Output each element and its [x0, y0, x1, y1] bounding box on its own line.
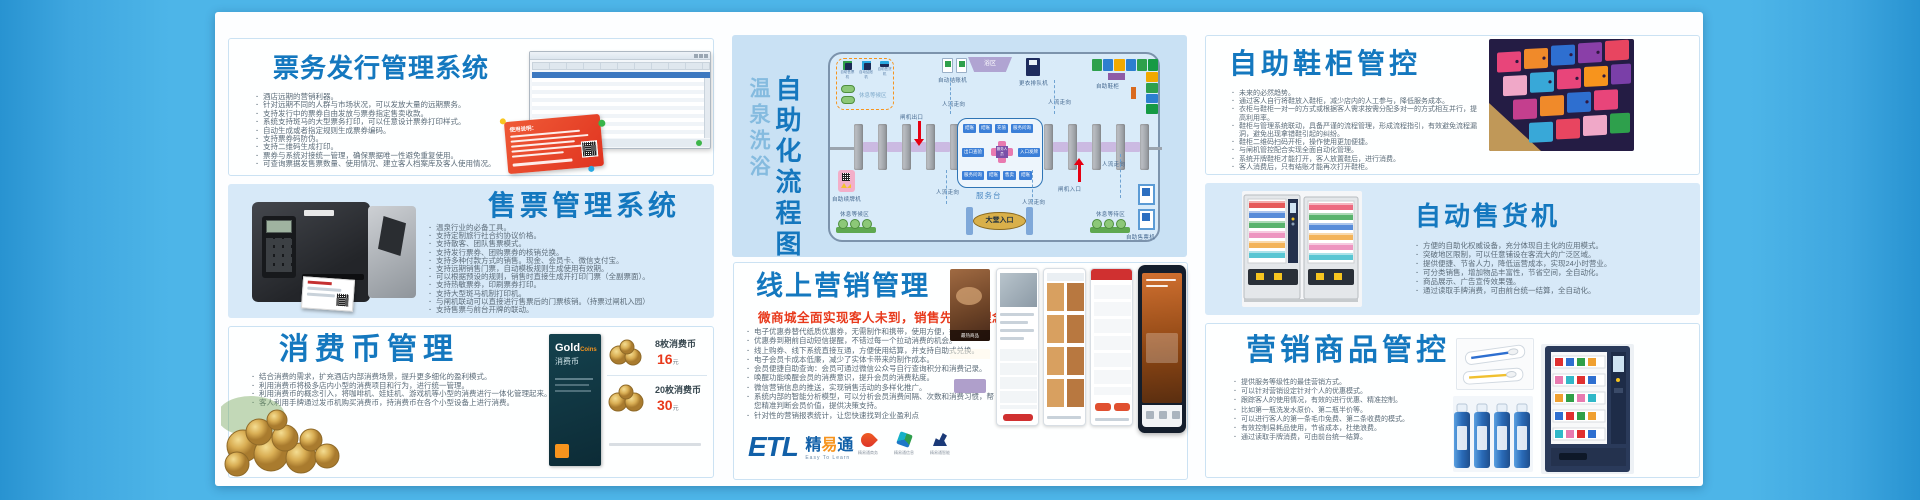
sub-brand: 精易通商务 [852, 433, 884, 456]
exit-arrow-head [914, 139, 924, 146]
bullet-list: 方便的自助化权威设备，充分体现自主化的应用模式。突破地区限制，可以任意铺设在客流… [1415, 241, 1690, 295]
bullet-line: 比如第一瓶洗发水原价、第二瓶半价等。 [1233, 406, 1451, 415]
locker-cell [1146, 72, 1158, 82]
gate-channel [887, 142, 902, 152]
price-value: 16元 [657, 351, 679, 369]
seat-icon [850, 219, 860, 229]
locker-cell [1137, 59, 1147, 71]
flow-dir-label: 人流走向 [942, 100, 965, 108]
sub-brand-label: 精易通智能 [924, 450, 956, 456]
hot-product-label: 最热商品 [950, 330, 990, 341]
bullet-line: 鞋柜与管理系统联动，具备严谨的流程管理，形成流程指引，有效避免流程漏洞，避免出现… [1231, 123, 1481, 139]
price-unit: 元 [673, 360, 679, 366]
desk-button: 充值 [995, 124, 1008, 133]
kiosk-screen [945, 61, 951, 67]
renew-qr-icon [842, 173, 850, 181]
screen-text-bar [1146, 285, 1168, 287]
coin-price-list: 8枚消费币 16元 20枚消费币 30元 [607, 331, 711, 471]
queue-label: 更衣排队机 [1019, 79, 1048, 87]
ticket-kiosk-label: 自助售票机 [1126, 233, 1155, 241]
etl-cn-block: 精易通 Easy To Learn [805, 431, 853, 461]
instruction-card: 使用说明： [504, 114, 604, 174]
screen-text-bar [1146, 279, 1176, 281]
renew-machine-icon [838, 170, 855, 192]
rest-right-label: 休息等待区 [1096, 210, 1125, 218]
app-hero-image [1000, 273, 1037, 307]
gold-coins-photo [221, 390, 351, 478]
legend-box: 自助售票机 自动结账机 自助售货机 休息等候区 [836, 58, 894, 110]
app-text-bar [1047, 416, 1081, 419]
window-titlebar [530, 52, 710, 60]
bullet-line: 提供便捷、节省人力，降低运营成本，实现24小时营业。 [1415, 259, 1690, 268]
sub-brand-label: 精易通信息 [888, 450, 920, 456]
service-desk-label: 服务台 [976, 190, 1002, 201]
app-button[interactable] [1003, 414, 1033, 421]
desk-btn-entry-issue: 入口发牌 [1018, 148, 1040, 157]
desk-button: 结账 [987, 171, 1000, 180]
card-line [555, 384, 589, 386]
bullet-line: 未来的必然趋势。 [1231, 90, 1481, 98]
card-line [555, 390, 591, 392]
desk-button: 服务问询 [1011, 124, 1033, 133]
price-number: 16 [657, 351, 673, 367]
bullet-line: 可以进行客人的第一条毛巾免费、第二条收费的模式。 [1233, 415, 1451, 424]
window-buttons-icon [694, 54, 708, 58]
entry-arrow [1078, 164, 1081, 182]
amenity-kits-photo [1456, 338, 1534, 390]
bullet-list: 未来的必然趋势。通过客人自行将鞋放入鞋柜，减少店内的人工参与，降低服务成本。衣柜… [1231, 90, 1481, 172]
rest-left-label: 休息等候区 [840, 210, 869, 218]
label-qr-icon [336, 294, 349, 307]
brand-char: 精 [805, 437, 821, 454]
gate-channel [863, 142, 878, 152]
app-list [1094, 285, 1131, 395]
locker-cell [1148, 59, 1158, 71]
lobby-label: 大堂入口 [974, 213, 1025, 229]
brand-char: 通 [837, 437, 853, 454]
gate-channel [935, 142, 950, 152]
price-number: 30 [657, 397, 673, 413]
flow-dir-label: 人流走向 [936, 188, 959, 196]
brand-sub-text: Coins [580, 347, 597, 353]
card-text-line [512, 151, 564, 158]
room-photo [950, 349, 990, 419]
wall [830, 147, 855, 150]
bath-label: 浴区 [968, 57, 1012, 72]
robot-logo-icon [933, 433, 947, 446]
panel-ticket-selling: 售票管理系统 温泉行业的必备工具。支持定制旅行社合约协议价格。支持散客、团队售票… [228, 184, 714, 318]
app-list [1000, 349, 1037, 409]
flow-room: 自助售票机 自动结账机 自助售货机 休息等候区 自动结账机 浴区 更衣排队机 自… [828, 52, 1160, 242]
app-text-bar [1000, 313, 1034, 316]
gate-pillar [902, 124, 911, 170]
desk-button: 服务问询 [962, 171, 984, 180]
panel-ticket-issuing: 票务发行管理系统 酒店远期的营销利器。针对远期不同的人群与市场状况，可以发放大量… [228, 38, 714, 176]
desk-row-bottom: 服务问询结账售卖结账 [962, 171, 1032, 180]
flow-path [950, 78, 951, 114]
seat-icon [1116, 219, 1126, 229]
flow-path [1120, 154, 1121, 198]
bullet-line: 通过读取手牌消费，可由前台统一结算。 [1233, 433, 1451, 442]
locker-photo [1489, 39, 1634, 151]
legend-rest-label: 休息等候区 [859, 91, 887, 99]
desk-center-cross: 服务人员 [991, 141, 1013, 163]
card-logo-icon [555, 444, 569, 458]
exit-arrow [918, 121, 921, 140]
panel-title: 线上营销管理 [756, 273, 930, 300]
photo-highlight [956, 287, 982, 305]
poster-stage: 票务发行管理系统 酒店远期的营销利器。针对远期不同的人群与市场状况，可以发放大量… [0, 0, 1920, 500]
price-unit: 元 [673, 406, 679, 412]
desk-button: 结账 [963, 124, 976, 133]
brand-tagline: Easy To Learn [805, 455, 853, 461]
sub-brand: 精易通智能 [924, 433, 956, 456]
bullet-line: 方便的自助化权威设备，充分体现自主化的应用模式。 [1415, 241, 1690, 250]
legend-seat-icon [841, 85, 855, 93]
bullet-line: 跟踪客人的使用情况，有效的进行优惠、精准控制。 [1233, 396, 1451, 405]
bath-zone: 浴区 [968, 57, 1012, 72]
gate-entry-label: 闸机入口 [1058, 185, 1081, 193]
status-dot-icon [696, 140, 702, 146]
confetti-dot [588, 166, 595, 173]
card-title: 使用说明： [509, 123, 537, 133]
printer-buttons [266, 238, 292, 272]
seat-icon [1104, 219, 1114, 229]
legend-item: 自助售票机 [839, 61, 856, 80]
locker-cell [1103, 59, 1113, 71]
kiosk-screen [1142, 213, 1150, 221]
gate-pillar [854, 124, 863, 170]
gate-channel [1101, 142, 1116, 152]
panel-flow-diagram: 温泉洗浴 自助化流程图 自助售票机 自动结账机 自助售货机 休息等候区 自动结账… [732, 35, 1187, 257]
flow-path [1054, 80, 1055, 114]
divider [607, 375, 707, 376]
locker-bench [1131, 87, 1136, 99]
etl-logo: ETL [748, 431, 798, 462]
gate-channel [1125, 142, 1140, 152]
wall [1148, 147, 1162, 150]
panel-online-marketing: 线上营销管理 微商城全面实现客人未到，销售先行的理念 电子优惠券替代纸质优惠券，… [733, 262, 1188, 480]
phone-screen [1142, 273, 1182, 403]
app-text-bar [1000, 321, 1028, 324]
desk-staff-label: 服务人员 [996, 146, 1008, 158]
coin-stack-photo [607, 383, 649, 413]
panel-vending: 自动售货机 方便的自助化权威设备，充分体现自主化的应用模式。突破地区限制，可以任… [1205, 183, 1700, 315]
cube-logo-icon [896, 431, 913, 448]
bottom-icon [1146, 411, 1154, 419]
desk-button: 售卖 [1003, 171, 1016, 180]
label-text-bar [308, 281, 332, 286]
printer-lcd [266, 220, 292, 233]
app-screenshot-phone [1043, 268, 1086, 426]
toiletry-bottles-photo [1453, 396, 1533, 472]
card-text-line [513, 158, 573, 166]
legend-item: 自助售货机 [876, 61, 893, 80]
flow-dir-label: 人流走向 [1102, 160, 1125, 168]
scrollbar[interactable] [704, 78, 710, 138]
gate-pillar [878, 124, 887, 170]
gate-pillar [1092, 124, 1101, 170]
bullet-line: 提供服务等级性的最佳营销方式。 [1233, 378, 1451, 387]
card-line [555, 378, 593, 380]
fine-print-line [609, 443, 701, 446]
screen-card [1146, 333, 1178, 363]
desk-btn-exit-check: 出口查验 [962, 148, 984, 157]
shoe-locker-label: 自助鞋柜 [1096, 82, 1119, 90]
locker-cell [1114, 59, 1124, 71]
ticket-kiosk-icon [1138, 209, 1155, 230]
machine-icon [862, 61, 871, 70]
kiosk-screen [959, 61, 965, 67]
locker-desk [1108, 73, 1125, 80]
label-text-bar [307, 293, 335, 298]
window-toolbar [532, 62, 710, 70]
legend-machines: 自助售票机 自动结账机 自助售货机 [839, 61, 893, 80]
bullet-line: 支持售票与前台开牌的联动。 [428, 306, 708, 314]
machine-screen [1029, 60, 1037, 65]
shoe-locker-col [1146, 72, 1158, 114]
panel-title: 营销商品管控 [1246, 336, 1450, 366]
bullet-line: 突破地区限制，可以任意铺设在客流大的广泛区域。 [1415, 250, 1690, 259]
price-value: 30元 [657, 397, 679, 415]
renew-spark-icon [841, 183, 851, 188]
photo-accent [954, 379, 986, 393]
price-label: 20枚消费币 [655, 383, 701, 396]
gate-pillar [926, 124, 935, 170]
panel-title: 消费币管理 [279, 335, 459, 365]
panel-shoe-locker: 自助鞋柜管控 未来的必然趋势。通过客人自行将鞋放入鞋柜，减少店内的人工参与，降低… [1205, 35, 1700, 175]
panel-title: 自动售货机 [1415, 203, 1560, 229]
checkout-kiosk-icon [956, 58, 967, 73]
app-header-red [1091, 269, 1132, 280]
bullet-line: 可以针对营销设定针对个人的优惠模式。 [1233, 387, 1451, 396]
sub-brand: 精易通信息 [888, 433, 920, 456]
bottom-icon [1172, 411, 1180, 419]
legend-label: 自助售货机 [876, 67, 893, 77]
desk-row-top: 结账结账充值服务问询 [963, 124, 1033, 133]
card-name: 消费币 [555, 356, 579, 367]
renew-label: 自助续牌机 [832, 195, 861, 203]
locker-cell [1146, 104, 1158, 114]
lobby-pillar [1026, 207, 1033, 235]
shoe-locker-row [1092, 59, 1158, 71]
app-image-grid [1047, 283, 1084, 407]
kiosk-screen [1142, 188, 1150, 196]
bottom-icon [1159, 411, 1167, 419]
legend-label: 自动结账机 [858, 70, 875, 80]
lobby-entrance: 大堂入口 [973, 212, 1026, 230]
label-text-bar [307, 287, 341, 292]
bullet-line: 客人消费后，只有结账才能再次打开鞋柜。 [1231, 164, 1481, 172]
gate-channel [1053, 142, 1068, 152]
etl-brand: ETL 精易通 Easy To Learn [748, 431, 853, 473]
phoenix-logo-icon [858, 430, 878, 450]
seat-icon [862, 219, 872, 229]
locker-cell [1092, 59, 1102, 71]
brand-text: Gold [555, 342, 580, 354]
printed-label [301, 276, 355, 312]
legend-seat-icon [841, 96, 855, 104]
vending-machines-photo [1242, 191, 1362, 307]
phone-bottom-bar [1142, 405, 1182, 427]
card-brand: GoldCoins [555, 342, 597, 354]
flow-dir-label: 人流走向 [1022, 198, 1045, 206]
queue-machine-icon [1026, 58, 1040, 76]
coin-stack-photo [607, 337, 649, 367]
ticket-kiosk-icon [1138, 184, 1155, 205]
locker-cell [1146, 94, 1158, 104]
locker-cell [1146, 83, 1158, 93]
app-button[interactable] [1095, 403, 1111, 411]
app-button[interactable] [1114, 403, 1130, 411]
flow-title: 自助化流程图 [774, 75, 800, 261]
price-label: 8枚消费币 [655, 337, 696, 350]
legend-label: 自助售票机 [839, 70, 856, 80]
bullet-line: 有效控制易耗品使用，节省成本，杜绝浪费。 [1233, 424, 1451, 433]
panel-goods-control: 营销商品管控 提供服务等级性的最佳营销方式。可以针对营销设定针对个人的优惠模式。… [1205, 323, 1700, 478]
panel-title: 售票管理系统 [488, 192, 680, 220]
app-text-bar [1000, 337, 1024, 340]
app-screenshot-phone [996, 268, 1039, 426]
flow-path [946, 170, 947, 204]
label-printer-photo [250, 190, 420, 310]
panel-coin-management: 消费币管理 结合消费的需求，扩充酒店内部消费场景，提升更多细化的盈利模式。利用消… [228, 326, 714, 478]
dark-phone-mockup [1138, 265, 1186, 433]
desk-button: 结账 [979, 124, 992, 133]
seat-icon [838, 219, 848, 229]
confetti-dot [500, 118, 507, 125]
flow-dir-label: 人流走向 [1048, 98, 1071, 106]
bullet-line: 衣柜与鞋柜一对一的方式或根据客人需求按需分配多对一的方式相互并行，提高利用率。 [1231, 106, 1481, 122]
service-desk: 结账结账充值服务问询 出口查验 服务人员 入口发牌 服务问询结账售卖结账 [957, 118, 1043, 188]
bullet-line: 系统开牌鞋柜才能打开，客人放置鞋后，进行消费。 [1231, 156, 1481, 164]
qr-code-icon [581, 140, 598, 157]
goods-vending-photo [1541, 344, 1634, 474]
desk-button: 结账 [1019, 171, 1032, 180]
seat-icon [1092, 219, 1102, 229]
gate-pillar [1140, 124, 1149, 170]
checkout-label: 自动结账机 [938, 76, 967, 84]
gate-channel [1077, 142, 1092, 152]
lobby-pillar [966, 207, 973, 235]
printer-control-panel [262, 216, 296, 278]
gate-exit-label: 闸机出口 [900, 113, 923, 121]
bullet-line: 与闸机管控配合实现全面自动化管理。 [1231, 147, 1481, 155]
app-header [1047, 273, 1084, 281]
bullet-line: 可分类销售，增加物品丰富性，节省空间，全自动化。 [1415, 268, 1690, 277]
printer-logo-strip [304, 210, 334, 216]
locker-cell [1126, 59, 1136, 71]
panel-title: 票务发行管理系统 [273, 55, 489, 81]
app-text-bar [1095, 418, 1129, 421]
gate-pillar [1044, 124, 1053, 170]
panel-title: 自助鞋柜管控 [1229, 50, 1421, 78]
bullet-line: 商品展示、广告宣传效果强。 [1415, 277, 1690, 286]
bullet-list: 提供服务等级性的最佳营销方式。可以针对营销设定针对个人的优惠模式。跟踪客人的使用… [1233, 378, 1451, 442]
app-screenshot-phone [1090, 268, 1133, 426]
flow-subtitle: 温泉洗浴 [748, 77, 769, 181]
flow-path [1032, 170, 1033, 202]
spa-photo: 最热商品 [950, 269, 990, 341]
machine-icon [843, 61, 852, 70]
sub-brand-label: 精易通商务 [852, 450, 884, 456]
brand-char: 易 [821, 437, 837, 454]
checkout-kiosk-icon [942, 58, 953, 73]
gold-coins-card: GoldCoins 消费币 [549, 334, 601, 466]
app-text-bar [1000, 329, 1034, 332]
photo-ceiling [950, 349, 990, 359]
legend-item: 自动结账机 [858, 61, 875, 80]
bullet-line: 通过读取手牌消费，可由前台统一结算，全自动化。 [1415, 286, 1690, 295]
bullet-list: 温泉行业的必备工具。支持定制旅行社合约协议价格。支持散客、团队售票模式。支持发行… [428, 224, 708, 314]
